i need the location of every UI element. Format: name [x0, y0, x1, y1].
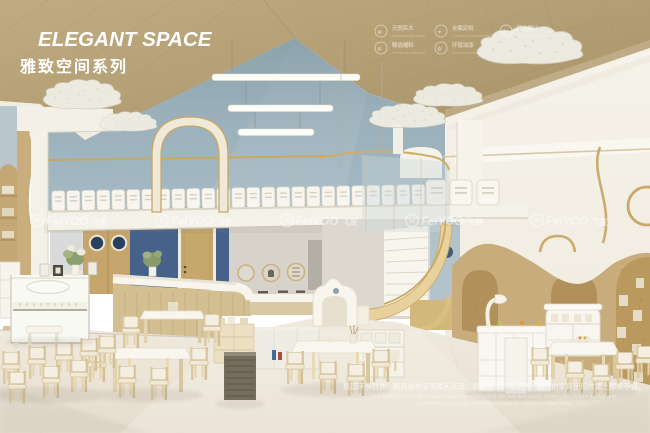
svg-text:comfortable space and it is ve: comfortable space and it is very suitabl…: [416, 401, 571, 407]
svg-text:❀: ❀: [377, 29, 382, 36]
svg-text:精选环保材质，明亮色构呈现柔和光泽，营造整体舒适氛围，制作的: 精选环保材质，明亮色构呈现柔和光泽，营造整体舒适氛围，制作的家具使用效果上都很不…: [343, 382, 645, 391]
svg-text:雅致空间系列: 雅致空间系列: [19, 57, 128, 76]
svg-text:✿: ✿: [502, 29, 507, 36]
svg-text:✻: ✻: [377, 46, 382, 53]
svg-text:Natural solid wood: Natural solid wood: [392, 33, 425, 38]
svg-text:天然实木: 天然实木: [392, 24, 414, 32]
svg-text:❁: ❁: [437, 46, 442, 53]
svg-text:Environmental paint: Environmental paint: [452, 50, 488, 55]
svg-text:Full set of customization: Full set of customization: [452, 33, 495, 38]
svg-text:✦: ✦: [437, 29, 442, 36]
svg-text:环保油漆: 环保油漆: [452, 41, 474, 49]
svg-text:Ingenious design: Ingenious design: [517, 33, 547, 38]
svg-text:匠心设计: 匠心设计: [517, 24, 539, 32]
svg-text:The furniture is made of natur: The furniture is made of natural wood an…: [372, 394, 617, 400]
svg-text:全案定制: 全案定制: [451, 24, 474, 32]
svg-text:ELEGANT SPACE: ELEGANT SPACE: [38, 28, 213, 51]
svg-text:Featured materials: Featured materials: [392, 50, 425, 55]
svg-text:精选辅料: 精选辅料: [392, 41, 414, 49]
